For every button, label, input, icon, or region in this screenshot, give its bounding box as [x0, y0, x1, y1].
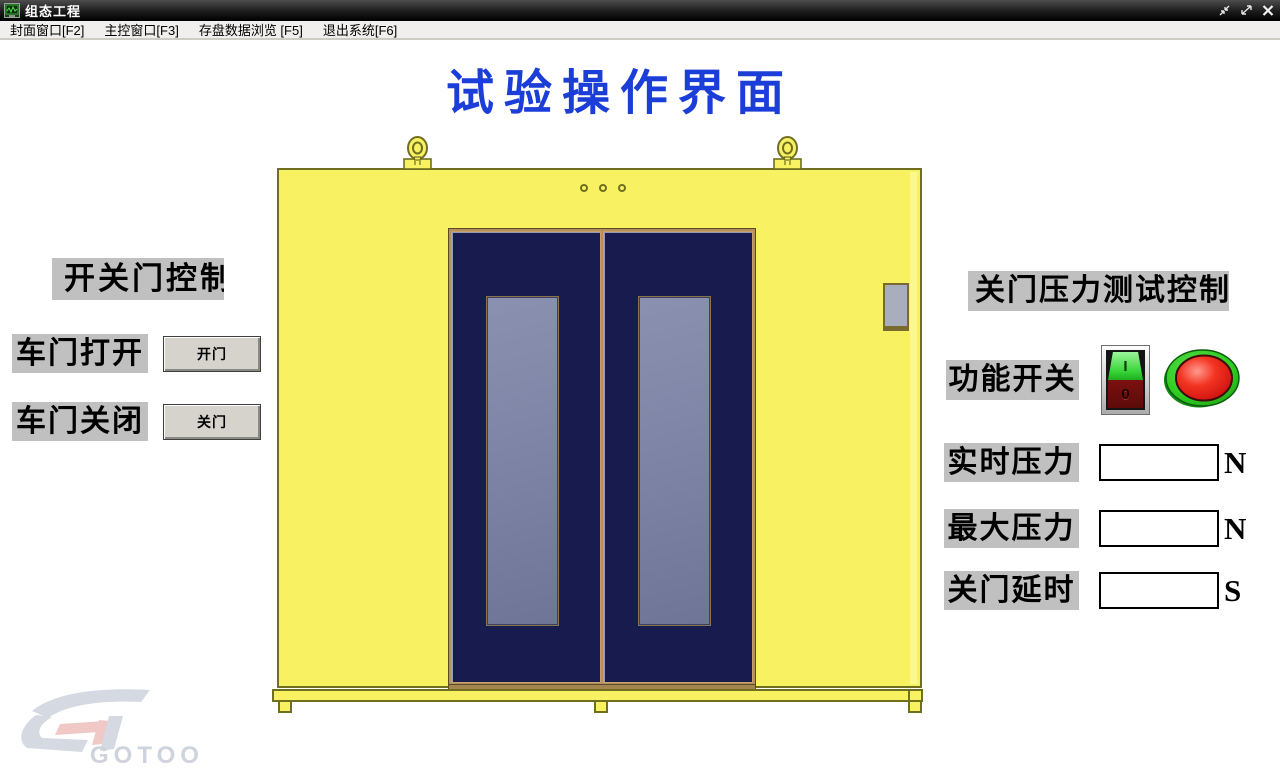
close-delay-unit: S: [1224, 572, 1254, 609]
door-closed-status-label: 车门关闭: [12, 402, 148, 441]
window-title: 组态工程: [25, 1, 81, 20]
open-door-button[interactable]: 开门: [163, 336, 261, 372]
chamber-screw-dot: [618, 184, 626, 192]
menubar: 封面窗口[F2] 主控窗口[F3] 存盘数据浏览 [F5] 退出系统[F6]: [0, 21, 1280, 40]
close-delay-input[interactable]: [1099, 572, 1219, 609]
rocker-frame: I 0: [1106, 350, 1145, 410]
realtime-pressure-label: 实时压力: [944, 443, 1079, 482]
hmi-window: 组态工程 封面窗口[F2] 主控窗口[F3] 存盘数据浏览 [F5]: [0, 0, 1280, 770]
gotoo-logo-watermark: GOTOO: [2, 683, 217, 768]
svg-text:GOTOO: GOTOO: [90, 742, 204, 768]
rocker-on-position: I: [1108, 352, 1143, 380]
chamber-foot-left: [278, 700, 292, 713]
realtime-pressure-input[interactable]: [1099, 444, 1219, 481]
menu-item-cover-window[interactable]: 封面窗口[F2]: [0, 19, 94, 40]
door-control-heading: 开关门控制: [52, 258, 224, 300]
chamber-screw-dot: [599, 184, 607, 192]
minimize-button[interactable]: [1216, 3, 1232, 17]
lifting-eyebolt-left-icon: [397, 135, 439, 171]
lifting-eyebolt-right-icon: [767, 135, 809, 171]
window-controls: [1216, 3, 1276, 17]
max-pressure-input[interactable]: [1099, 510, 1219, 547]
door-window-right: [639, 297, 710, 625]
door-open-status-label: 车门打开: [12, 334, 148, 373]
titlebar: 组态工程: [0, 0, 1280, 21]
close-delay-label: 关门延时: [944, 571, 1079, 610]
menu-item-data-browse[interactable]: 存盘数据浏览 [F5]: [189, 19, 313, 40]
chamber-screw-dot: [580, 184, 588, 192]
chamber-edge-highlight: [910, 172, 917, 684]
realtime-pressure-unit: N: [1224, 444, 1254, 481]
max-pressure-unit: N: [1224, 510, 1254, 547]
close-button[interactable]: [1260, 3, 1276, 17]
function-switch-label: 功能开关: [946, 360, 1079, 400]
close-door-button[interactable]: 关门: [163, 404, 261, 440]
menu-item-main-window[interactable]: 主控窗口[F3]: [94, 19, 188, 40]
status-indicator-lamp-icon: [1163, 349, 1241, 409]
function-rocker-switch[interactable]: I 0: [1101, 345, 1150, 415]
maximize-button[interactable]: [1238, 3, 1254, 17]
pressure-test-heading: 关门压力测试控制: [968, 271, 1229, 311]
page-title: 试验操作界面: [300, 64, 940, 124]
app-icon: [4, 3, 20, 18]
menu-item-exit-system[interactable]: 退出系统[F6]: [313, 19, 407, 40]
door-window-left: [487, 297, 558, 625]
chamber-foot-right: [908, 700, 922, 713]
chamber-foot-center: [594, 700, 608, 713]
rocker-off-position: 0: [1108, 380, 1143, 408]
chamber-side-panel: [883, 283, 909, 331]
max-pressure-label: 最大压力: [944, 509, 1079, 548]
